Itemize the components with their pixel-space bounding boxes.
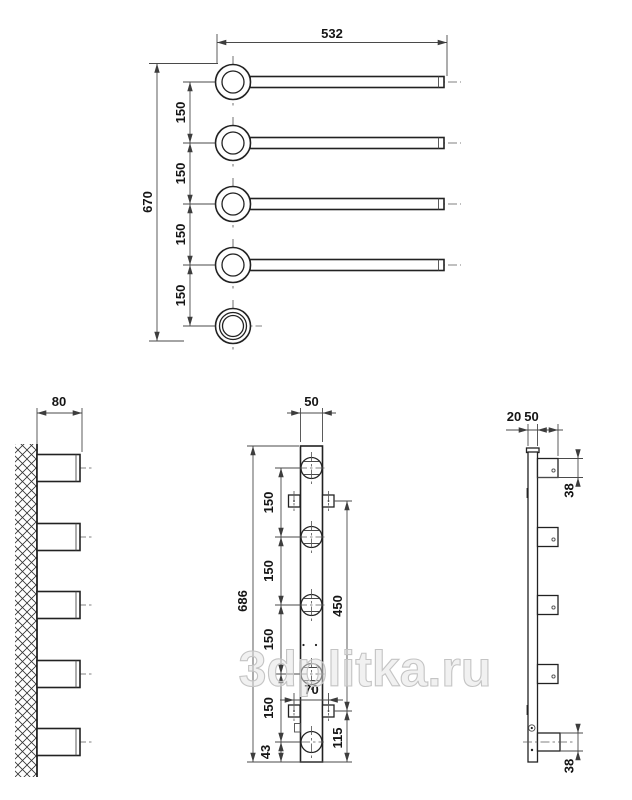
rail-stubs (37, 455, 80, 756)
rail-collar (216, 187, 251, 222)
dim-rail-height-bottom: 38 (562, 759, 577, 773)
dim-bar-width: 50 (304, 394, 318, 409)
rail-stub-side (538, 665, 559, 684)
dim-rail-length: 532 (321, 26, 343, 41)
dim-stub-depth: 80 (52, 394, 66, 409)
rail-stub (37, 729, 80, 756)
rail-stub-side (538, 596, 559, 615)
dim-spacing: 150 (261, 492, 276, 514)
dim-spacing: 150 (173, 102, 188, 124)
wall-hatching (15, 444, 37, 777)
dim-stub-depth-side: 50 (524, 409, 538, 424)
rail-stub (37, 524, 80, 551)
bracket-front-view: 50 686 150 150 150 150 43 450 115 70 (235, 394, 352, 762)
top-view-dimensions: 532 670 150 150 150 150 (140, 26, 447, 341)
rail-collar-bottom (216, 309, 251, 344)
rail-tube (250, 138, 444, 149)
top-plan-view: 532 670 150 150 150 150 (140, 26, 461, 352)
dim-bar-height: 686 (235, 590, 250, 612)
dim-tab-span: 450 (330, 595, 345, 617)
dim-bottom-span: 115 (330, 728, 345, 749)
technical-drawing: 532 670 150 150 150 150 80 (0, 0, 632, 800)
wall-view-dimensions: 80 (37, 394, 82, 452)
rail-stub (37, 661, 80, 688)
rail-collar (216, 126, 251, 161)
technical-drawing-page: 532 670 150 150 150 150 80 (0, 0, 632, 800)
rail-collar (216, 248, 251, 283)
rail-tube (250, 77, 444, 88)
dim-bar-thickness: 20 (507, 409, 521, 424)
mounting-bar-side (528, 452, 538, 762)
rail-collar (216, 65, 251, 100)
dim-spacing: 150 (261, 560, 276, 582)
dim-spacing: 150 (173, 163, 188, 185)
dim-overall-height: 670 (140, 191, 155, 213)
rail-tube (250, 199, 444, 210)
rail-stub-side (538, 459, 559, 478)
dim-rail-height-top: 38 (562, 483, 577, 497)
rail-tube (250, 260, 444, 271)
pin-dot (531, 749, 533, 751)
rail-stub (37, 592, 80, 619)
rail-tubes (250, 77, 444, 271)
rail-stub (37, 455, 80, 482)
wall-section-view: 80 (15, 394, 93, 777)
edge-notch (295, 724, 301, 733)
dim-spacing: 150 (261, 697, 276, 719)
mounting-bar (301, 446, 323, 762)
bracket-side-view: 20 50 38 38 (506, 409, 583, 773)
dim-spacing: 150 (173, 285, 188, 307)
dim-spacing: 150 (173, 224, 188, 246)
watermark-text: 3dplitka.ru (239, 641, 492, 697)
dim-bottom-offset: 43 (258, 745, 273, 759)
rail-stub-side (538, 528, 559, 547)
